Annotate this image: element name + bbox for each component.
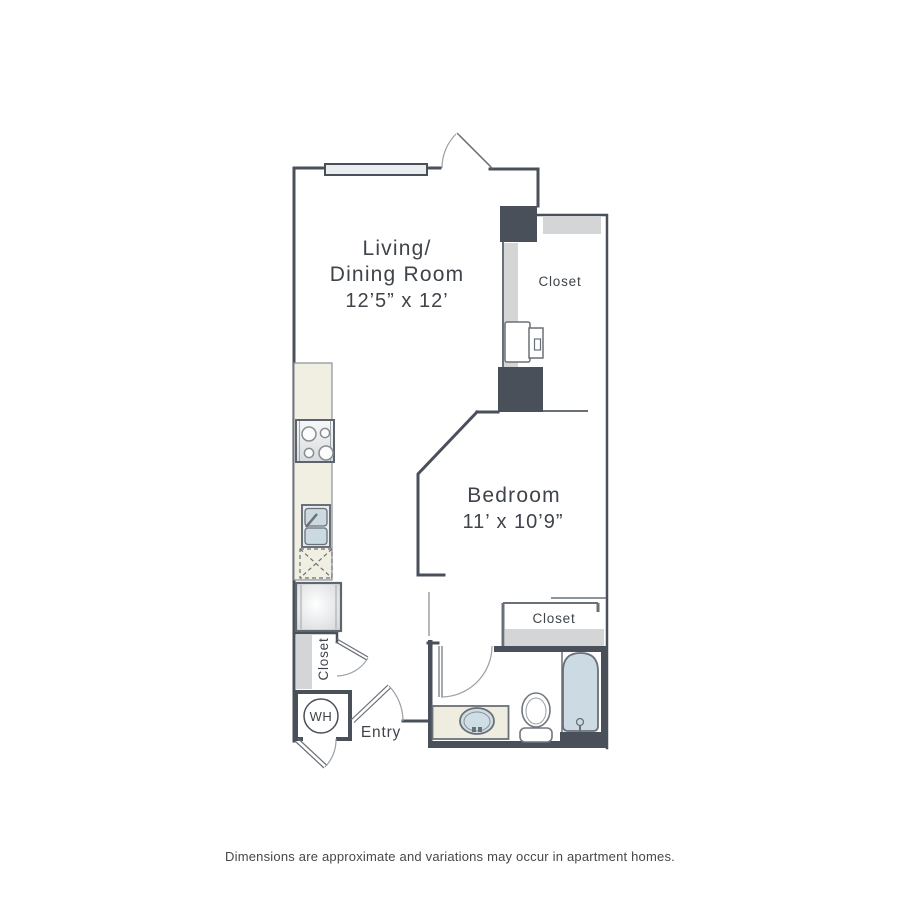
- bathtub-icon: [563, 653, 598, 732]
- entry-door: [351, 685, 403, 723]
- bathroom-door: [439, 646, 492, 697]
- hall-closet-door: [336, 639, 369, 676]
- entry-label: Entry: [361, 724, 401, 741]
- living-room-dimensions: 12’5” x 12’: [345, 290, 448, 312]
- disclaimer-text: Dimensions are approximate and variation…: [0, 849, 900, 864]
- window: [325, 164, 427, 175]
- floor-plan: WH Living/ Dining Room 12’5” x 12’ Bedro…: [0, 0, 900, 900]
- hall-closet-label: Closet: [316, 637, 331, 680]
- toilet-icon: [520, 693, 552, 742]
- washer-dryer-icon: [505, 322, 543, 362]
- entry-closet-label: Closet: [538, 274, 581, 289]
- balcony-door: [442, 133, 493, 169]
- floor-plan-canvas: WH Living/ Dining Room 12’5” x 12’ Bedro…: [0, 0, 900, 900]
- bedroom-dimensions: 11’ x 10’9”: [462, 511, 563, 533]
- living-room-label-line2: Dining Room: [330, 263, 465, 286]
- refrigerator-icon: [296, 583, 341, 631]
- vanity-sink-icon: [433, 706, 509, 739]
- bedroom-closet-label: Closet: [532, 611, 575, 626]
- stove-icon: [296, 420, 334, 462]
- water-heater-label: WH: [310, 709, 333, 724]
- walls: [294, 168, 607, 748]
- kitchen-sink-icon: [302, 505, 330, 547]
- water-heater-icon: WH: [304, 699, 338, 733]
- bedroom-label: Bedroom: [467, 484, 561, 507]
- living-room-label-line1: Living/: [362, 237, 431, 260]
